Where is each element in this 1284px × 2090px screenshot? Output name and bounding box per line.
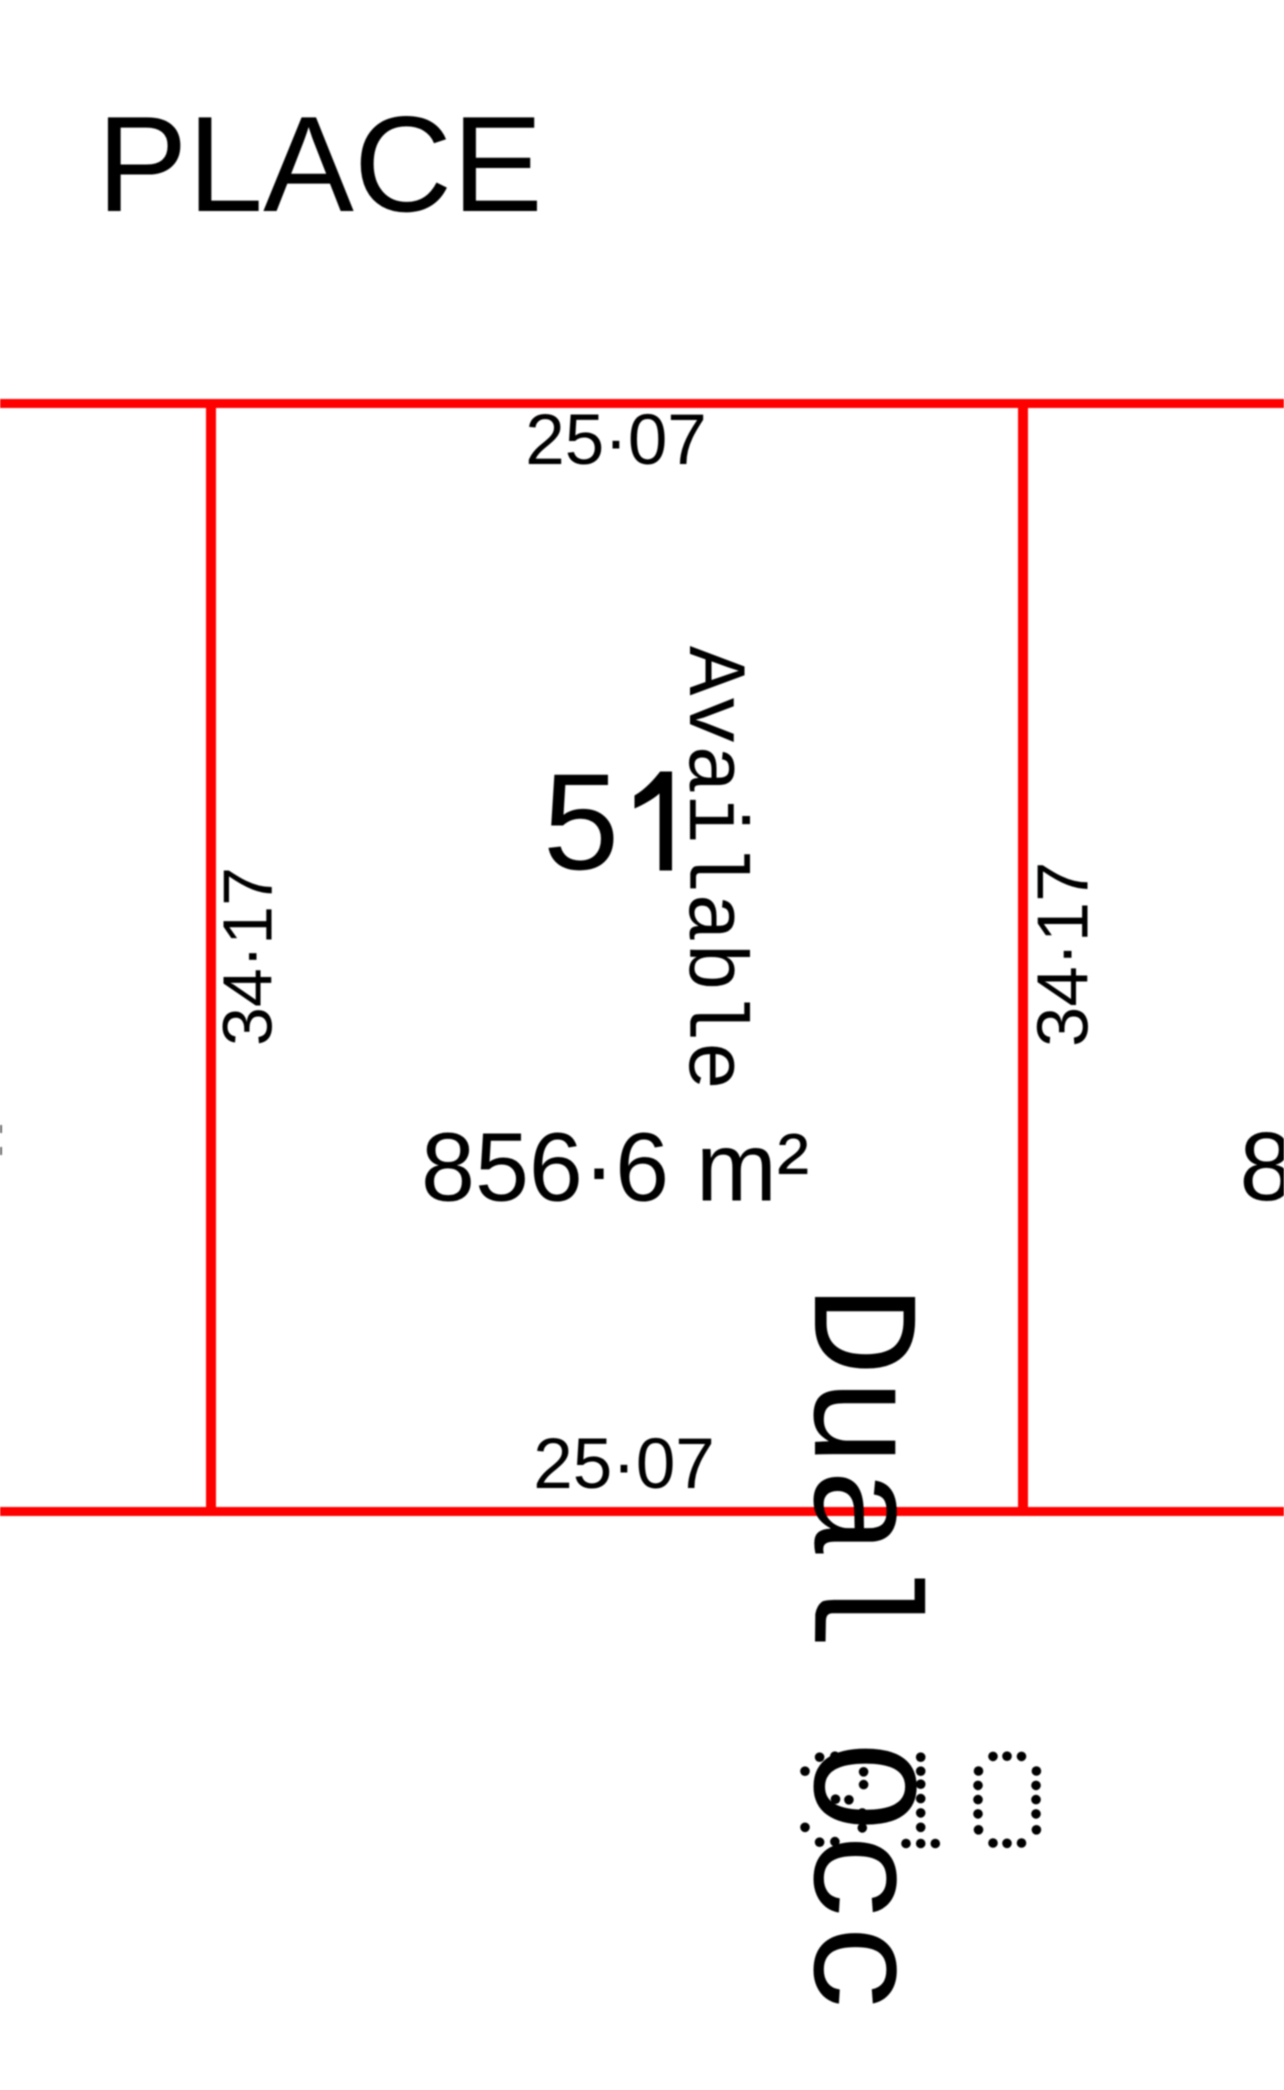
svg-text:25·07: 25·07 <box>525 401 707 480</box>
svg-text:856·6 m²: 856·6 m² <box>421 1113 809 1222</box>
svg-text:34·17: 34·17 <box>1023 862 1104 1047</box>
svg-text:PLACE: PLACE <box>97 88 543 240</box>
svg-text:34·17: 34·17 <box>209 867 287 1046</box>
svg-text:5: 5 <box>543 746 619 899</box>
svg-text:25·07: 25·07 <box>533 1425 715 1504</box>
svg-text:Dual Occ: Dual Occ <box>769 1285 942 2015</box>
svg-text:856: 856 <box>1240 1112 1284 1221</box>
svg-text:Available: Available <box>665 646 759 1090</box>
